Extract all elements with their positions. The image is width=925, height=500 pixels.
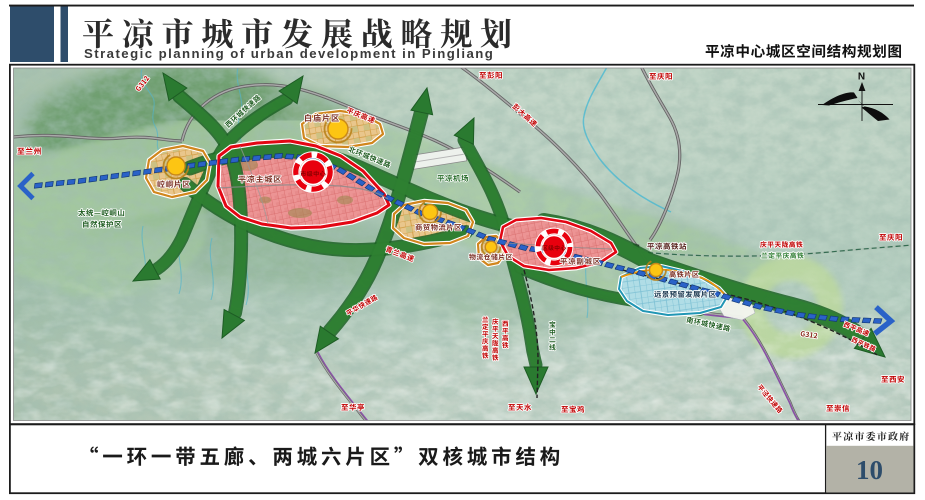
svg-text:N: N: [858, 72, 865, 83]
svg-text:10: 10: [856, 455, 883, 485]
svg-text:Strategic planning of urban de: Strategic planning of urban development …: [84, 46, 494, 61]
